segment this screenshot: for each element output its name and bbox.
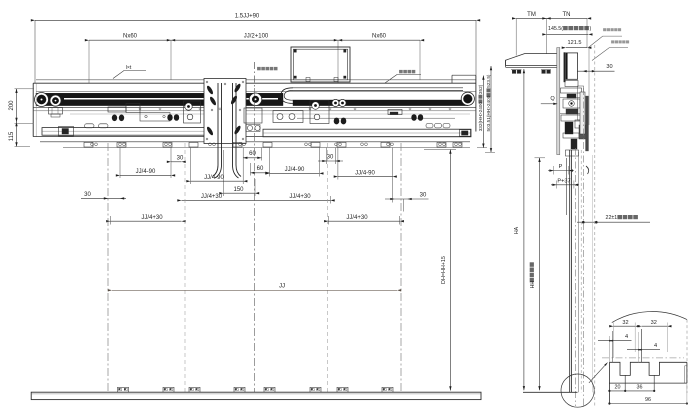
svg-text:1.5JJ+90: 1.5JJ+90 bbox=[235, 14, 260, 20]
svg-text:HA: HA bbox=[514, 226, 520, 234]
svg-text:JJ/4+30: JJ/4+30 bbox=[289, 194, 311, 200]
svg-text:20: 20 bbox=[615, 385, 621, 391]
svg-text:121.5: 121.5 bbox=[568, 40, 582, 46]
svg-text:JJ/4-90: JJ/4-90 bbox=[204, 175, 224, 181]
svg-text:523.5): 523.5) bbox=[486, 74, 491, 88]
svg-text:22±1: 22±1 bbox=[606, 215, 618, 221]
svg-text:30: 30 bbox=[177, 155, 184, 161]
svg-text:30: 30 bbox=[606, 64, 612, 70]
svg-text:32: 32 bbox=[651, 320, 657, 326]
svg-text:200: 200 bbox=[9, 100, 15, 111]
svg-text:JJ: JJ bbox=[279, 284, 285, 290]
svg-text:4: 4 bbox=[625, 334, 628, 340]
svg-text:Nx60: Nx60 bbox=[123, 34, 138, 40]
svg-text:115: 115 bbox=[9, 131, 15, 141]
svg-text:503.51(HH>2400: 503.51(HH>2400 bbox=[486, 95, 491, 131]
svg-text:JJ/4-90: JJ/4-90 bbox=[285, 167, 305, 173]
svg-text:DH=HH+15: DH=HH+15 bbox=[441, 256, 447, 284]
svg-text:Nx60: Nx60 bbox=[372, 34, 387, 40]
svg-text:30: 30 bbox=[84, 192, 91, 198]
svg-text:32: 32 bbox=[622, 320, 628, 326]
svg-text:JJ/4+30: JJ/4+30 bbox=[201, 194, 223, 200]
svg-text:TM: TM bbox=[527, 12, 536, 18]
svg-text:): ) bbox=[590, 26, 592, 32]
svg-text:Q: Q bbox=[550, 96, 555, 102]
svg-text:4: 4 bbox=[654, 343, 657, 349]
svg-text:JJ/2+100: JJ/2+100 bbox=[244, 34, 269, 40]
svg-text:l×t: l×t bbox=[126, 65, 132, 71]
svg-text:332(HH>2400: 332(HH>2400 bbox=[478, 102, 483, 132]
svg-text:96: 96 bbox=[645, 397, 651, 403]
svg-text:36: 36 bbox=[637, 385, 643, 391]
svg-text:60: 60 bbox=[257, 166, 264, 172]
svg-text:145.5(: 145.5( bbox=[548, 26, 563, 32]
svg-text:JJ/4+30: JJ/4+30 bbox=[346, 215, 368, 221]
svg-text:JJ/4+30: JJ/4+30 bbox=[141, 215, 163, 221]
svg-text:P+37: P+37 bbox=[557, 178, 570, 184]
svg-text:30: 30 bbox=[420, 192, 427, 198]
svg-text:P: P bbox=[559, 164, 563, 170]
svg-text:JJ/4-90: JJ/4-90 bbox=[136, 169, 156, 175]
svg-text:TN: TN bbox=[563, 12, 571, 18]
svg-text:150: 150 bbox=[233, 187, 244, 193]
svg-text:60: 60 bbox=[249, 151, 256, 157]
svg-text:352): 352) bbox=[478, 84, 483, 94]
svg-text:JJ/4-90: JJ/4-90 bbox=[355, 170, 375, 176]
